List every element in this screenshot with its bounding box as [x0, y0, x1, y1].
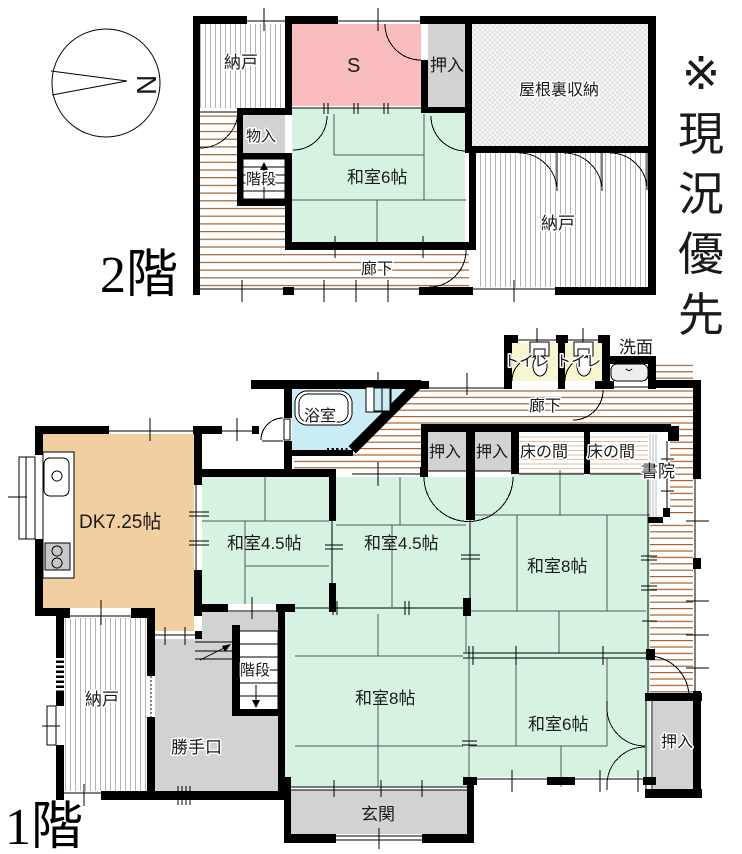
svg-text:玄関: 玄関 — [361, 805, 395, 824]
svg-text:勝手口: 勝手口 — [171, 738, 222, 757]
svg-text:納戸: 納戸 — [541, 214, 575, 233]
svg-text:S: S — [347, 55, 360, 77]
svg-text:押入: 押入 — [430, 56, 464, 75]
svg-text:洗面: 洗面 — [619, 338, 653, 357]
svg-text:床の間: 床の間 — [520, 443, 568, 461]
svg-text:現: 現 — [678, 108, 724, 160]
svg-text:廊下: 廊下 — [361, 260, 393, 278]
svg-text:物入: 物入 — [246, 128, 276, 145]
svg-text:況: 況 — [678, 168, 724, 220]
svg-text:和室4.5帖: 和室4.5帖 — [364, 534, 439, 553]
svg-text:2階: 2階 — [100, 247, 178, 304]
svg-text:和室6帖: 和室6帖 — [347, 168, 407, 187]
svg-text:N: N — [131, 75, 162, 95]
svg-text:押入: 押入 — [476, 443, 508, 461]
svg-text:階段: 階段 — [246, 171, 276, 188]
svg-text:1階: 1階 — [5, 799, 83, 854]
svg-text:和室8帖: 和室8帖 — [355, 689, 415, 708]
svg-text:押入: 押入 — [661, 733, 693, 751]
svg-text:納戸: 納戸 — [85, 690, 119, 709]
svg-text:和室8帖: 和室8帖 — [527, 557, 587, 576]
svg-text:先: 先 — [678, 289, 724, 341]
svg-text:書院: 書院 — [641, 462, 675, 481]
svg-text:和室4.5帖: 和室4.5帖 — [227, 534, 302, 553]
svg-text:和室6帖: 和室6帖 — [528, 715, 588, 734]
svg-text:納戸: 納戸 — [224, 53, 258, 72]
svg-text:押入: 押入 — [429, 443, 461, 461]
svg-text:トイレ: トイレ — [504, 353, 549, 370]
svg-text:廊下: 廊下 — [529, 397, 561, 415]
svg-text:※: ※ — [682, 47, 721, 99]
svg-text:トイレ: トイレ — [556, 353, 601, 370]
svg-text:床の間: 床の間 — [587, 443, 635, 461]
svg-text:DK7.25帖: DK7.25帖 — [79, 511, 161, 533]
svg-text:優: 優 — [678, 228, 724, 280]
svg-text:浴室: 浴室 — [304, 407, 336, 425]
svg-text:階段: 階段 — [240, 662, 270, 679]
svg-text:屋根裏収納: 屋根裏収納 — [519, 80, 599, 99]
